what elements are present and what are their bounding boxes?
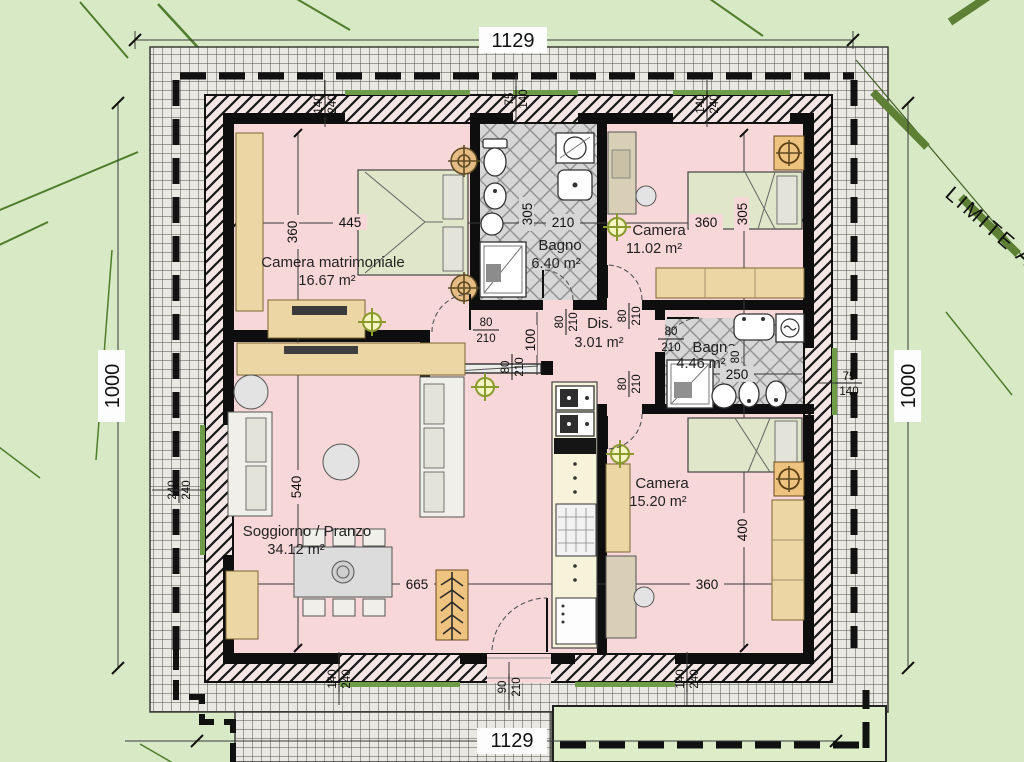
desk (606, 556, 636, 638)
wardrobe (236, 133, 263, 311)
svg-text:80: 80 (480, 317, 493, 329)
svg-text:305: 305 (735, 203, 750, 226)
side-table (234, 375, 268, 409)
room-area-camera2: 11.02 m² (626, 241, 682, 257)
double-sink (734, 314, 774, 340)
bidet (766, 381, 786, 407)
kitchen-sink (556, 504, 596, 556)
dim-305-rot: 305 (519, 197, 535, 231)
svg-text:240: 240 (327, 94, 339, 113)
room-area-bagno1: 6.40 m² (531, 256, 580, 272)
oven (554, 438, 596, 454)
toilet-tank (483, 139, 507, 148)
dim-360-rot: 360 (284, 215, 300, 249)
toilet (739, 381, 759, 407)
dim-right-value: 1000 (898, 364, 920, 409)
svg-text:305: 305 (520, 203, 535, 226)
svg-text:240: 240 (181, 480, 193, 499)
floor-plan-page: 1129 1129 1000 1000 (0, 0, 1024, 762)
svg-text:210: 210 (631, 374, 643, 393)
svg-text:250: 250 (726, 367, 749, 382)
bidet (484, 183, 506, 209)
wardrobe (772, 500, 804, 620)
room-area-camera-matrimoniale: 16.67 m² (298, 273, 355, 289)
cabinet (606, 464, 630, 552)
dim-540-rot: 540 (288, 470, 304, 504)
svg-text:400: 400 (735, 519, 750, 542)
shower (480, 242, 526, 297)
svg-text:210: 210 (661, 342, 680, 354)
dim-665: 665 (400, 576, 434, 592)
svg-text:80: 80 (554, 316, 566, 329)
washing-machine (556, 133, 594, 163)
svg-text:210: 210 (552, 215, 575, 230)
svg-text:90: 90 (497, 681, 509, 694)
svg-text:80: 80 (730, 351, 742, 364)
round-sink (712, 384, 736, 408)
dim-360b: 360 (689, 214, 723, 230)
svg-text:140: 140 (313, 94, 325, 113)
toilet (484, 148, 506, 176)
coffee-table (323, 444, 359, 480)
svg-text:240: 240 (341, 669, 353, 688)
svg-text:140: 140 (695, 94, 707, 113)
dim-top-value: 1129 (491, 30, 534, 52)
kitchen-strip (552, 382, 597, 648)
room-label-bagno1: Bagno (538, 237, 581, 254)
svg-text:140: 140 (839, 386, 858, 398)
svg-text:360: 360 (695, 215, 718, 230)
room-label-camera3: Camera (635, 475, 689, 492)
svg-text:140: 140 (518, 89, 530, 108)
svg-text:210: 210 (511, 677, 523, 696)
svg-text:75: 75 (504, 93, 516, 106)
dim-100-rot: 100 (522, 325, 538, 355)
svg-text:75: 75 (843, 371, 856, 383)
room-area-dis: 3.01 m² (574, 335, 623, 351)
washing-machine (776, 314, 804, 342)
dim-80-rot: 80 (728, 346, 742, 368)
room-area-soggiorno: 34.12 m² (267, 542, 324, 558)
fridge (556, 598, 596, 644)
svg-text:240: 240 (689, 669, 701, 688)
svg-text:210: 210 (476, 333, 495, 345)
dim-210: 210 (546, 214, 580, 230)
svg-text:360: 360 (696, 577, 719, 592)
svg-text:140: 140 (675, 669, 687, 688)
cabinet (226, 571, 258, 639)
dresser (268, 300, 365, 338)
svg-text:360: 360 (285, 221, 300, 244)
dim-360c: 360 (690, 576, 724, 592)
svg-text:445: 445 (339, 215, 362, 230)
chair (634, 587, 654, 607)
washbasin (558, 170, 592, 200)
dim-250: 250 (720, 366, 754, 382)
sofa-left (228, 412, 272, 516)
room-label-dis: Dis. (587, 315, 613, 332)
svg-text:140: 140 (327, 669, 339, 688)
svg-text:540: 540 (289, 476, 304, 499)
tv (292, 306, 347, 315)
room-label-soggiorno: Soggiorno / Pranzo (243, 523, 371, 540)
svg-text:240: 240 (709, 94, 721, 113)
svg-text:80: 80 (617, 378, 629, 391)
sofa-right (420, 377, 464, 517)
svg-text:665: 665 (406, 577, 429, 592)
dim-445: 445 (333, 214, 367, 230)
svg-text:210: 210 (631, 306, 643, 325)
floor-plan-drawing: 1129 1129 1000 1000 (0, 0, 1024, 762)
svg-text:100: 100 (523, 329, 538, 352)
svg-text:80: 80 (665, 326, 678, 338)
round-sink (481, 213, 503, 235)
svg-text:210: 210 (514, 357, 526, 376)
dim-400-rot: 400 (734, 513, 750, 547)
dim-305b-rot: 305 (734, 197, 750, 231)
plant (436, 570, 468, 640)
room-label-camera2: Camera (632, 222, 686, 239)
room-label-camera-matrimoniale: Camera matrimoniale (261, 254, 404, 271)
svg-text:210: 210 (568, 312, 580, 331)
chair (636, 186, 656, 206)
tv (284, 346, 358, 354)
room-area-bagno2: 4.46 m² (676, 356, 725, 372)
svg-text:240: 240 (167, 480, 179, 499)
dim-bottom-value: 1129 (490, 730, 533, 752)
wardrobe (656, 268, 804, 298)
terrace-platform (553, 706, 886, 762)
svg-text:80: 80 (617, 310, 629, 323)
room-area-camera3: 15.20 m² (629, 494, 686, 510)
dim-left-value: 1000 (102, 364, 124, 409)
svg-text:80: 80 (500, 361, 512, 374)
